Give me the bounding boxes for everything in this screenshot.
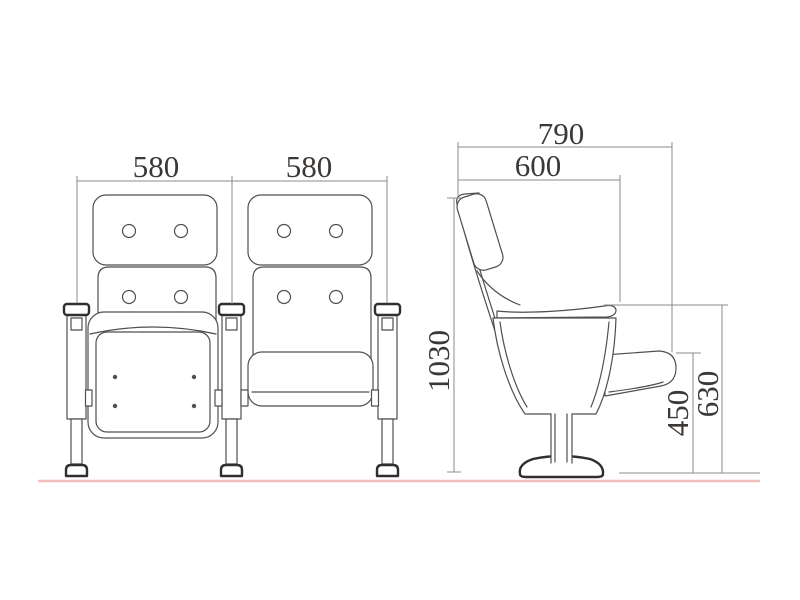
chair-technical-drawing: 580 580 790 600 1030 450 630 xyxy=(0,0,800,600)
headrest-panel xyxy=(93,195,217,265)
seat-pivot-bracket xyxy=(215,390,222,406)
stand-leg xyxy=(226,419,237,464)
front-left-chair xyxy=(88,195,218,438)
dim-label-chair2-width: 580 xyxy=(286,149,333,184)
dim-label-chair1-width: 580 xyxy=(133,149,180,184)
seat-pivot-bracket xyxy=(86,390,93,406)
dim-label-seat-back-height: 630 xyxy=(690,371,725,418)
stand-foot xyxy=(377,465,398,476)
stand-leg xyxy=(382,419,393,464)
lumbar-cushion-edge xyxy=(477,271,520,305)
stand-foot xyxy=(66,465,87,476)
seat-pivot-bracket xyxy=(241,390,248,406)
armrest-cap xyxy=(64,304,89,315)
armrest-cap xyxy=(219,304,244,315)
side-panel xyxy=(493,318,616,414)
front-right-chair xyxy=(248,195,373,406)
seat-pivot-bracket xyxy=(372,390,379,406)
armrest-stand-right xyxy=(372,304,401,476)
seat-folded-down xyxy=(248,352,373,406)
seat-cushion-profile xyxy=(497,306,616,319)
armrest-profile xyxy=(604,351,676,396)
stand-leg xyxy=(71,419,82,464)
seat-folded-up xyxy=(88,312,218,438)
armrest-cap xyxy=(375,304,400,315)
stand-foot xyxy=(221,465,242,476)
side-view xyxy=(455,191,676,477)
drawing-canvas: 580 580 790 600 1030 450 630 xyxy=(0,0,800,600)
dim-label-overall-depth: 790 xyxy=(538,116,585,151)
armrest-stand-middle xyxy=(215,304,248,476)
dim-label-overall-height: 1030 xyxy=(421,330,456,392)
dim-label-seat-depth: 600 xyxy=(515,148,562,183)
headrest-panel xyxy=(248,195,372,265)
headrest-cushion xyxy=(455,191,506,272)
pedestal xyxy=(520,413,603,477)
